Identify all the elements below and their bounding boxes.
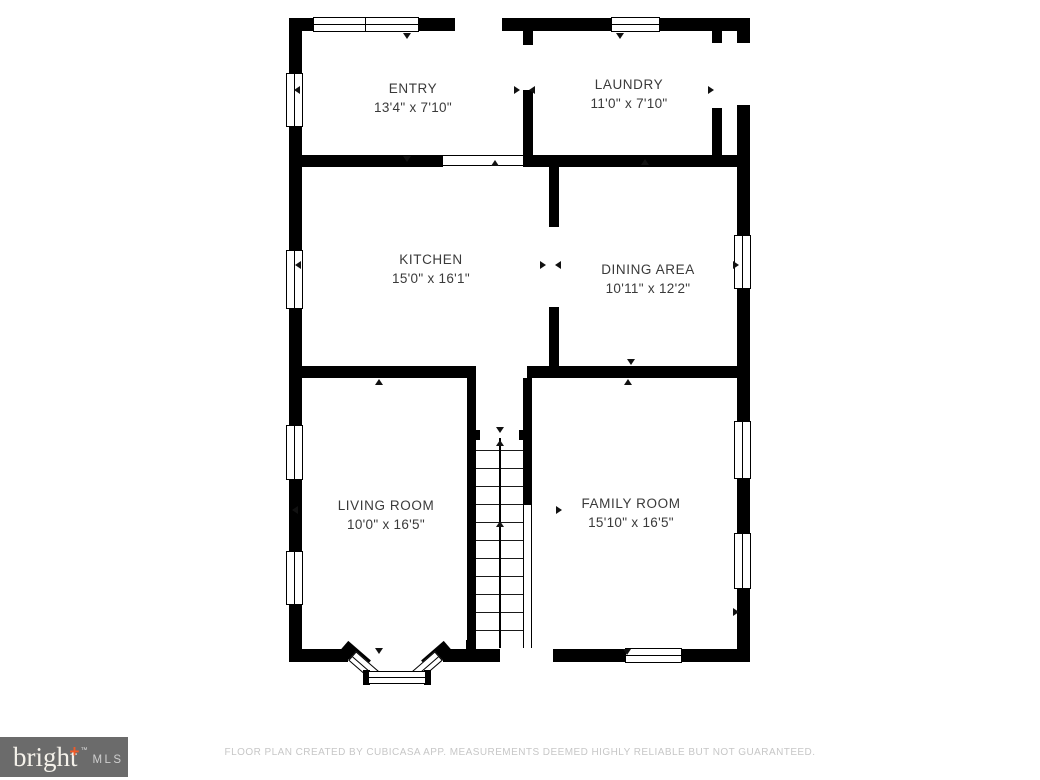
room-label-entry: ENTRY 13'4" x 7'10" bbox=[313, 81, 513, 115]
room-name: FAMILY ROOM bbox=[531, 496, 731, 511]
door-marker bbox=[514, 86, 520, 94]
room-dimensions: 10'11" x 12'2" bbox=[548, 281, 748, 296]
window bbox=[286, 425, 303, 480]
door-marker bbox=[403, 33, 411, 39]
door-marker bbox=[641, 159, 649, 165]
stair-direction-line bbox=[499, 438, 501, 648]
door-marker bbox=[375, 379, 383, 385]
wall bbox=[737, 105, 750, 237]
door-marker bbox=[375, 648, 383, 654]
door-marker bbox=[540, 261, 546, 269]
wall bbox=[680, 649, 750, 662]
bright-mls-logo: bright + ™ MLS bbox=[0, 737, 128, 777]
door-marker bbox=[733, 608, 739, 616]
room-dimensions: 10'0" x 16'5" bbox=[286, 517, 486, 532]
stair-wall-stub bbox=[467, 430, 480, 440]
logo-suffix-text: MLS bbox=[92, 754, 123, 766]
window bbox=[286, 551, 303, 605]
bay-window bbox=[368, 671, 426, 684]
room-dimensions: 13'4" x 7'10" bbox=[313, 100, 513, 115]
door-marker bbox=[627, 359, 635, 365]
door-marker bbox=[616, 33, 624, 39]
door-marker bbox=[295, 261, 301, 269]
room-dimensions: 15'0" x 16'1" bbox=[331, 271, 531, 286]
room-dimensions: 15'10" x 16'5" bbox=[531, 515, 731, 530]
door-marker bbox=[403, 156, 411, 162]
wall bbox=[712, 108, 722, 155]
door-marker bbox=[624, 379, 632, 385]
wall bbox=[737, 287, 750, 423]
wall bbox=[549, 167, 559, 227]
room-name: LIVING ROOM bbox=[286, 498, 486, 513]
room-label-family: FAMILY ROOM 15'10" x 16'5" bbox=[531, 496, 731, 530]
door-marker bbox=[294, 86, 300, 94]
window bbox=[625, 648, 682, 663]
wall bbox=[523, 155, 750, 167]
wall bbox=[527, 366, 750, 378]
wall bbox=[292, 155, 443, 167]
room-label-kitchen: KITCHEN 15'0" x 16'1" bbox=[331, 252, 531, 286]
logo-brand-text: bright bbox=[13, 744, 78, 771]
stair-up-arrow bbox=[496, 440, 504, 446]
logo-plus-icon: + bbox=[70, 743, 80, 760]
wall bbox=[292, 366, 476, 378]
stair-wall-stub bbox=[466, 640, 476, 652]
window bbox=[286, 73, 303, 127]
room-name: ENTRY bbox=[313, 81, 513, 96]
wall bbox=[712, 31, 722, 43]
wall bbox=[417, 18, 455, 31]
room-name: DINING AREA bbox=[548, 262, 748, 277]
room-dimensions: 11'0" x 7'10" bbox=[529, 96, 729, 111]
window bbox=[313, 17, 366, 32]
disclaimer-text: FLOOR PLAN CREATED BY CUBICASA APP. MEAS… bbox=[0, 747, 1040, 758]
room-label-dining: DINING AREA 10'11" x 12'2" bbox=[548, 262, 748, 296]
window bbox=[286, 250, 303, 309]
wall bbox=[523, 31, 533, 45]
stair-up-arrow bbox=[496, 521, 504, 527]
room-name: LAUNDRY bbox=[529, 77, 729, 92]
stair-wall-stub bbox=[519, 430, 532, 440]
window bbox=[734, 533, 751, 589]
logo-trademark: ™ bbox=[80, 747, 87, 754]
door-marker bbox=[623, 649, 631, 655]
wall bbox=[502, 18, 613, 31]
room-label-living: LIVING ROOM 10'0" x 16'5" bbox=[286, 498, 486, 532]
window bbox=[611, 17, 660, 32]
opening-line bbox=[443, 165, 523, 166]
floor-plan-canvas: ENTRY 13'4" x 7'10" LAUNDRY 11'0" x 7'10… bbox=[0, 0, 1040, 780]
wall bbox=[289, 125, 302, 252]
wall bbox=[553, 649, 627, 662]
wall bbox=[289, 18, 302, 75]
room-label-laundry: LAUNDRY 11'0" x 7'10" bbox=[529, 77, 729, 111]
wall bbox=[737, 477, 750, 535]
opening-line bbox=[443, 155, 523, 156]
window bbox=[365, 17, 419, 32]
door-marker bbox=[491, 160, 499, 166]
stair-wall bbox=[523, 378, 532, 505]
room-name: KITCHEN bbox=[331, 252, 531, 267]
window bbox=[734, 421, 751, 479]
stair-entry-marker bbox=[496, 427, 504, 433]
wall bbox=[737, 18, 750, 43]
